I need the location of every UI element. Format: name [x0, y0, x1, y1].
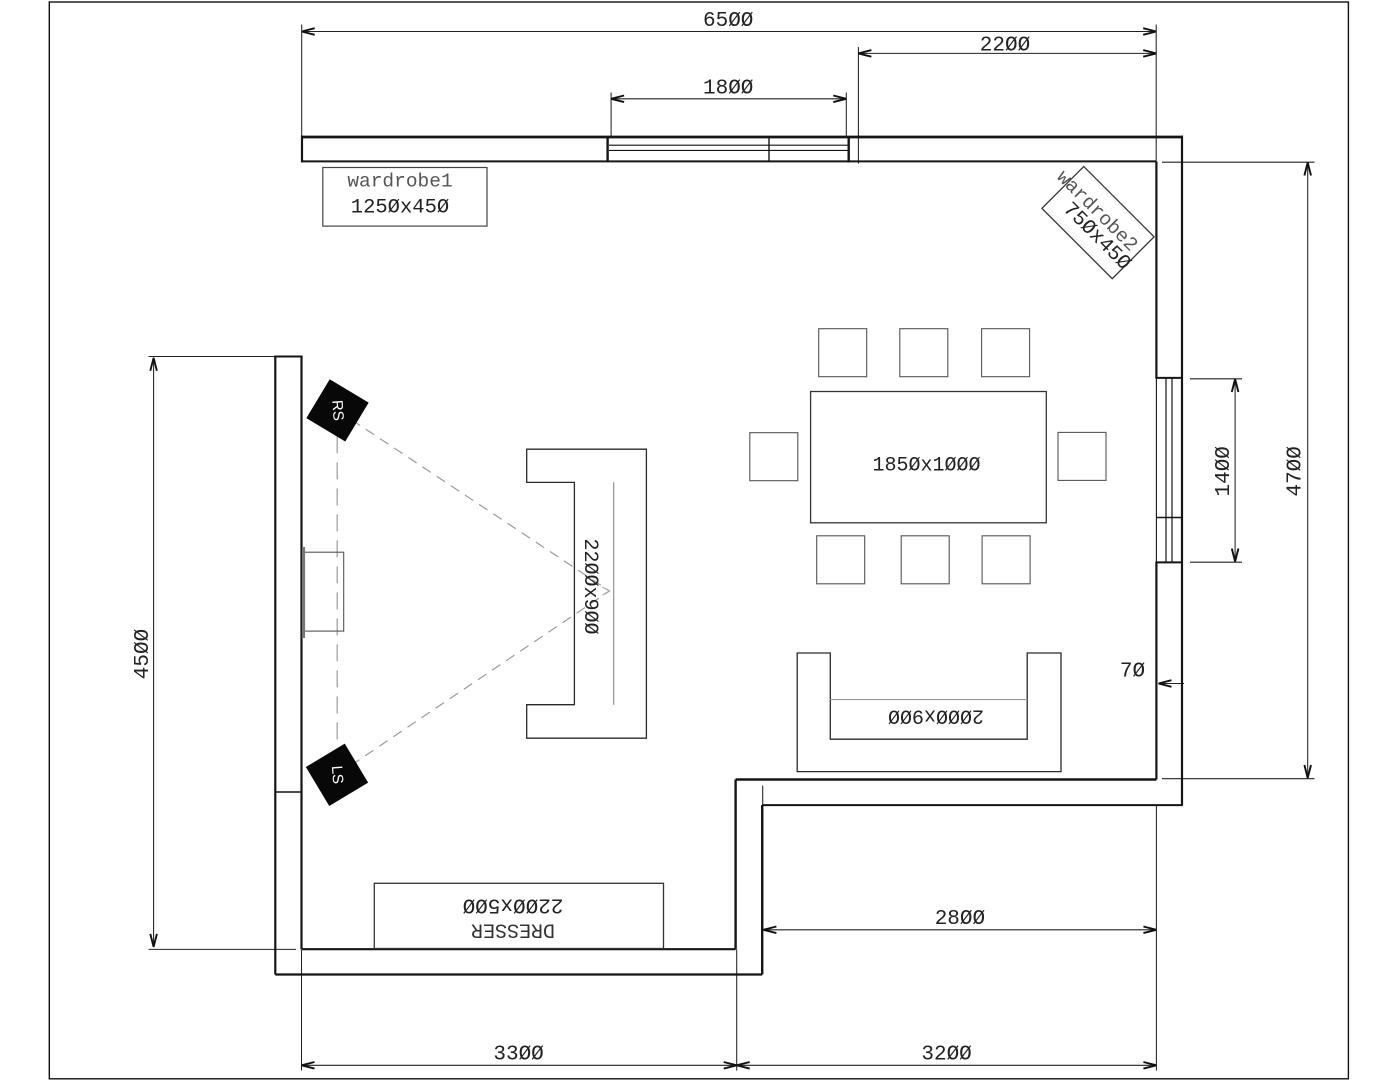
svg-text:22ØØx5ØØ: 22ØØx5ØØ	[463, 892, 564, 915]
svg-text:22ØØx9ØØ: 22ØØx9ØØ	[578, 538, 601, 634]
svg-text:2ØØØx9ØØ: 2ØØØx9ØØ	[888, 703, 984, 726]
svg-text:18ØØ: 18ØØ	[703, 78, 753, 101]
svg-text:33ØØ: 33ØØ	[493, 1044, 543, 1067]
svg-text:45ØØ: 45ØØ	[132, 629, 155, 679]
svg-text:22ØØ: 22ØØ	[980, 34, 1030, 57]
svg-text:RS: RS	[328, 399, 346, 421]
svg-text:wardrobe1: wardrobe1	[347, 171, 452, 193]
svg-text:125Øx45Ø: 125Øx45Ø	[351, 197, 449, 220]
svg-text:7Ø: 7Ø	[1120, 661, 1145, 684]
svg-text:DRESSER: DRESSER	[471, 918, 555, 941]
svg-text:47ØØ: 47ØØ	[1285, 446, 1308, 496]
svg-text:65ØØ: 65ØØ	[703, 10, 753, 33]
svg-text:32ØØ: 32ØØ	[921, 1044, 971, 1067]
svg-text:LS: LS	[328, 765, 346, 785]
svg-text:185Øx1ØØØ: 185Øx1ØØØ	[872, 454, 980, 477]
svg-text:28ØØ: 28ØØ	[935, 908, 985, 931]
svg-text:14ØØ: 14ØØ	[1213, 446, 1236, 496]
